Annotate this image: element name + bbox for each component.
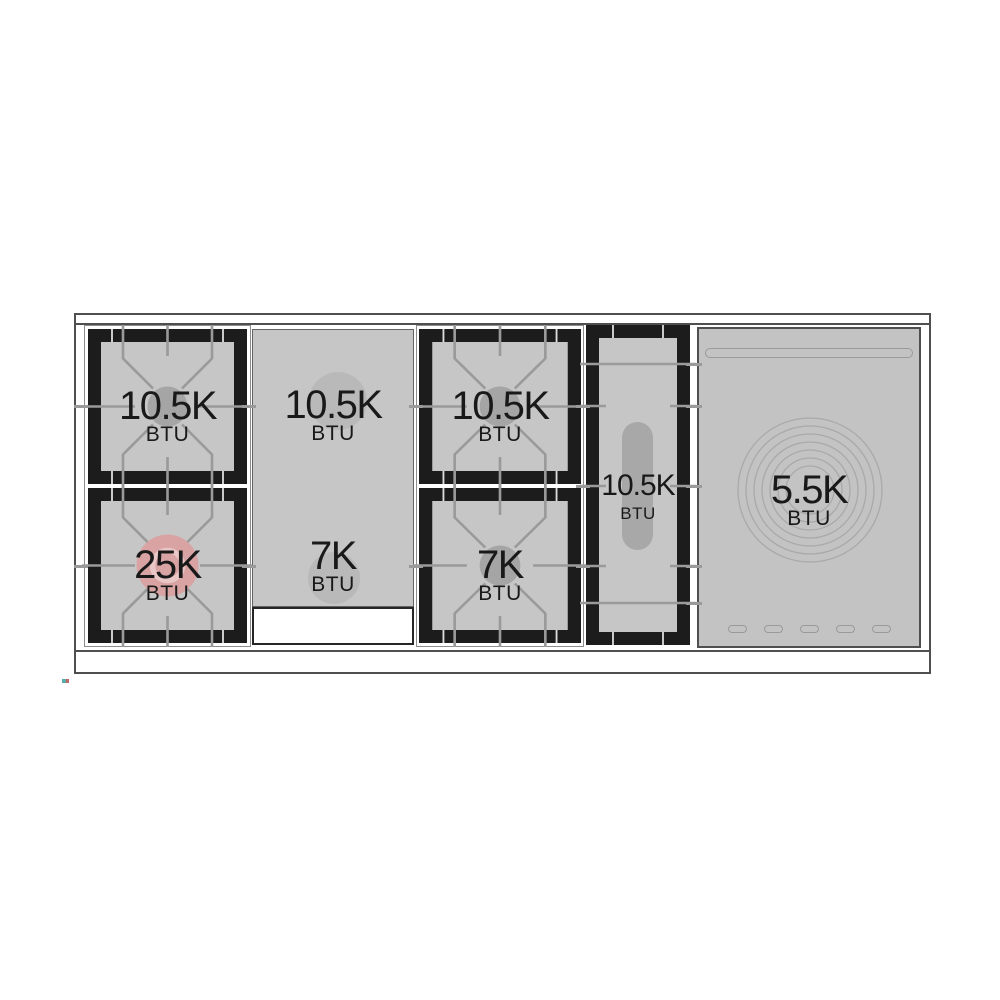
grate-tick xyxy=(74,405,88,408)
burner-center-front: 7K BTU xyxy=(419,488,581,643)
burner-grate-icon xyxy=(419,329,581,484)
grate-tick xyxy=(409,565,423,568)
burner-grate-icon xyxy=(88,329,247,484)
vent-slot-icon xyxy=(705,348,913,358)
oval-burner-section: 10.5K BTU xyxy=(586,325,690,645)
vent-hole-icon xyxy=(764,625,783,633)
burner-group-left: 10.5K BTU 25K BTU xyxy=(84,325,251,647)
burner-center-rear: 10.5K BTU xyxy=(419,329,581,484)
burner-group-center: 10.5K BTU 7K BTU xyxy=(416,325,584,647)
grate-tick xyxy=(576,485,590,488)
oval-burner-grate-icon xyxy=(586,325,690,645)
rangetop-diagram: 10.5K BTU 25K BTU xyxy=(0,0,1000,1000)
vent-hole-icon xyxy=(800,625,819,633)
griddle-section: 10.5K BTU 7K BTU xyxy=(252,329,414,645)
grate-tick xyxy=(686,602,702,605)
grate-tick xyxy=(686,485,702,488)
grate-tick xyxy=(686,363,702,366)
grate-tick xyxy=(242,565,256,568)
front-edge-line xyxy=(76,650,929,652)
grate-tick xyxy=(576,565,590,568)
grate-tick xyxy=(686,565,702,568)
grate-tick xyxy=(242,405,256,408)
griddle-front-burner-cap-icon xyxy=(308,552,360,604)
burner-left-front-highlighted: 25K BTU xyxy=(88,488,247,643)
griddle-rear-burner-cap-icon xyxy=(309,372,367,430)
simmer-rings-icon xyxy=(735,415,885,565)
backguard-strip xyxy=(76,315,929,325)
grate-tick xyxy=(409,405,423,408)
burner-grate-icon xyxy=(419,488,581,643)
cooktop-outline: 10.5K BTU 25K BTU xyxy=(74,313,931,674)
vent-holes-row xyxy=(699,625,919,633)
griddle-plate: 10.5K BTU 7K BTU xyxy=(252,329,414,607)
grate-tick xyxy=(576,405,590,408)
griddle-grease-tray xyxy=(252,607,414,645)
simmer-plate-section: 5.5K BTU xyxy=(697,327,921,648)
vent-hole-icon xyxy=(728,625,747,633)
burner-grate-icon xyxy=(88,488,247,643)
highlighted-burner-cap-icon xyxy=(137,535,199,597)
grate-tick xyxy=(74,565,88,568)
burner-left-rear: 10.5K BTU xyxy=(88,329,247,484)
vent-hole-icon xyxy=(872,625,891,633)
compression-artifact-dot xyxy=(62,679,69,683)
oval-burner-cap-icon xyxy=(622,422,653,550)
grate-tick xyxy=(686,405,702,408)
vent-hole-icon xyxy=(836,625,855,633)
